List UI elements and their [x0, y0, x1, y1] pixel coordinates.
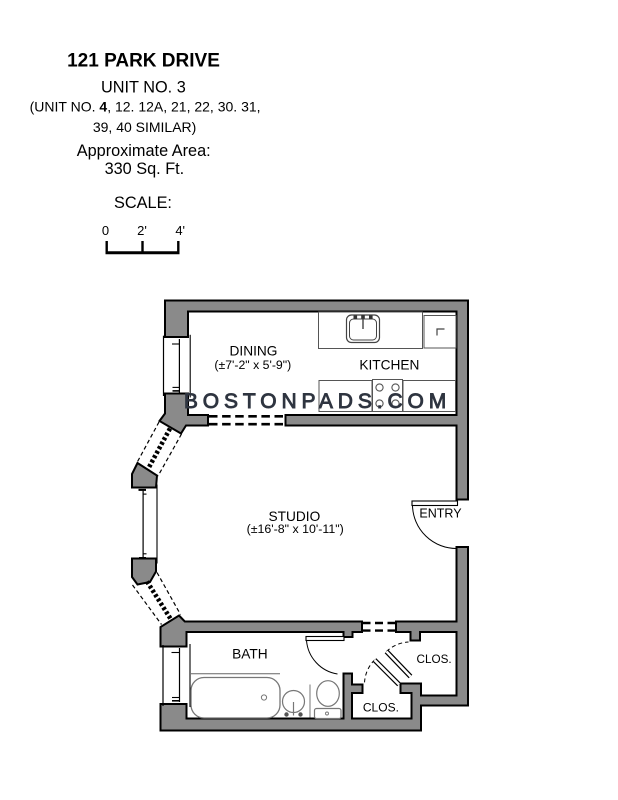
svg-text:DINING: DINING [230, 344, 278, 359]
svg-text:BOSTONPADS.COM: BOSTONPADS.COM [184, 390, 451, 413]
svg-text:(±7'-2" x 5'-9"): (±7'-2" x 5'-9") [214, 358, 291, 372]
svg-text:CLOS.: CLOS. [363, 701, 399, 715]
svg-text:(±16'-8" x 10'-11"): (±16'-8" x 10'-11") [247, 522, 344, 536]
svg-text:39, 40 SIMILAR): 39, 40 SIMILAR) [93, 119, 197, 135]
svg-text:4': 4' [175, 223, 185, 238]
svg-text:BATH: BATH [232, 647, 268, 662]
svg-text:0: 0 [102, 223, 109, 238]
svg-text:2': 2' [137, 223, 147, 238]
svg-text:ENTRY: ENTRY [419, 507, 462, 521]
svg-text:(UNIT NO. 4, 12. 12A, 21, 22,: (UNIT NO. 4, 12. 12A, 21, 22, 30. 31, [30, 99, 261, 115]
svg-text:121 PARK DRIVE: 121 PARK DRIVE [67, 51, 220, 72]
svg-text:UNIT NO. 3: UNIT NO. 3 [101, 79, 186, 97]
svg-text:330 Sq. Ft.: 330 Sq. Ft. [105, 160, 185, 178]
svg-text:SCALE:: SCALE: [114, 194, 172, 212]
svg-text:KITCHEN: KITCHEN [359, 357, 419, 372]
svg-text:CLOS.: CLOS. [417, 653, 452, 666]
svg-text:Approximate Area:: Approximate Area: [77, 142, 211, 160]
